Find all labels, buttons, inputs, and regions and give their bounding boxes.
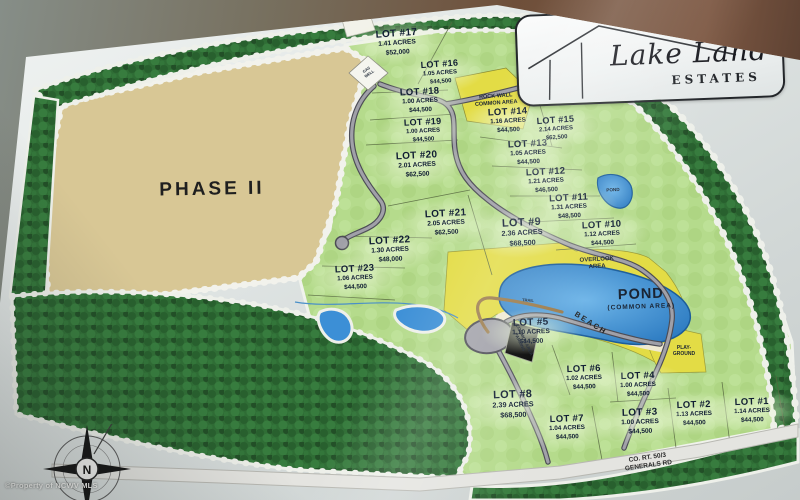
pond-small-label: POND [606, 187, 620, 193]
phase-label: PHASE II [159, 178, 265, 203]
lot-label-17: LOT #171.41 ACRES$52,000 [375, 26, 418, 57]
lot-label-3: LOT #31.00 ACRES$44,500 [621, 406, 660, 436]
lot-label-15: LOT #152.14 ACRES$62,500 [536, 114, 575, 142]
compass-north-letter: N [83, 463, 92, 477]
sign-photo: N LOT #11.14 ACRES$44,500LOT #21.13 ACRE… [0, 0, 800, 500]
pond-main-label: POND(COMMON AREA) [607, 285, 675, 313]
map-board: N LOT #11.14 ACRES$44,500LOT #21.13 ACRE… [0, 0, 800, 500]
lot-label-19: LOT #191.00 ACRES$44,500 [404, 116, 443, 144]
trail-label: TRAIL [522, 298, 534, 304]
watermark-text: ©Property of NCWV MLS [5, 481, 98, 490]
lot-label-8: LOT #82.39 ACRES$68,500 [492, 388, 534, 420]
lot-label-6: LOT #61.02 ACRES$44,500 [566, 363, 603, 391]
lot-label-21: LOT #212.05 ACRES$62,500 [424, 207, 467, 237]
logo-title: Lake Land [609, 33, 768, 72]
lot-label-23: LOT #231.06 ACRES$44,500 [335, 262, 376, 291]
lot-label-20: LOT #202.01 ACRES$62,500 [395, 149, 438, 179]
logo-plaque: Lake Land ESTATES [514, 5, 785, 107]
overlook-label: OVERLOOKAREA [579, 256, 614, 272]
playground-label: PLAY-GROUND [673, 345, 695, 357]
